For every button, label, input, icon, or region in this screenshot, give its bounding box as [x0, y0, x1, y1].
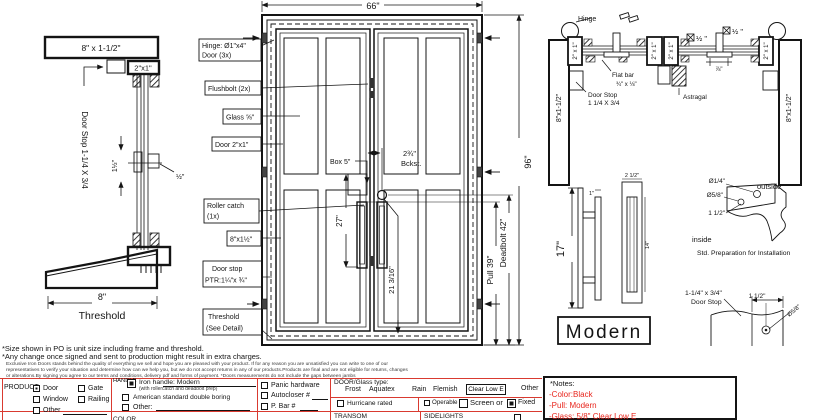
pull-height-dim: Pull 39"	[485, 255, 495, 284]
callout-doorstop-line1: Door stop	[212, 266, 242, 273]
plan-section	[549, 13, 801, 185]
plan-doorstop-line2: 1 1/4 X 3/4	[588, 100, 620, 107]
door-width-dim: 66"	[366, 1, 379, 11]
callout-bottom-rail: 8"x1½"	[230, 236, 253, 244]
handle-iron-sub-label: (with rollercatch and deadbolt prep)	[139, 387, 217, 393]
stop-profile-hole-dim: Ø5/8"	[787, 304, 802, 318]
handle-other-blank[interactable]	[156, 410, 250, 411]
handle-inner-dim: 14"	[645, 241, 651, 249]
operable-checkbox[interactable]	[424, 400, 430, 406]
color-row-label: COLOR	[113, 416, 136, 420]
latch-height-dim: 1½"	[111, 159, 119, 172]
callout-glass: Glass ⅝"	[226, 115, 255, 122]
callout-threshold-line2: (See Detail)	[206, 326, 243, 333]
screen-label: Screen or	[470, 399, 503, 407]
pull-handle-detail	[558, 179, 650, 344]
callout-roller-line2: (1x)	[207, 214, 219, 221]
form-rule-v5	[420, 411, 421, 420]
stop-profile-size: 1-1/4" x 3/4"	[685, 290, 723, 297]
head-door-stop-label: Door Stop 1-1/4 X 3/4	[80, 111, 89, 189]
handle-height-dim: 17"	[555, 241, 567, 257]
panic-hardware-checkbox[interactable]	[261, 382, 268, 389]
handle-top-dim: 1"	[589, 191, 594, 197]
pull-length-dim: 27"	[335, 215, 344, 227]
hurricane-checkbox[interactable]	[337, 400, 344, 407]
plan-flatbar-line2: ¾" x ⅛"	[616, 82, 637, 88]
plan-glass-dim-1: ½ "	[696, 34, 707, 43]
latch-offset-dim: ½"	[176, 173, 185, 181]
handle-width-dim: 2 1/2"	[625, 173, 639, 179]
handle-iron-checkbox[interactable]	[127, 379, 136, 388]
plan-jamb-left-label: 8"x1-1/2"	[556, 93, 563, 122]
handle-other-checkbox[interactable]	[122, 404, 129, 411]
plan-astragal-label: Astragal	[683, 94, 707, 101]
backset-dim-line1: 2¾"	[403, 149, 416, 158]
plan-stile-label-2: 2" x 1"	[652, 42, 658, 59]
footnote-fineprint-1: Exclusive Iron Doors stands behind the q…	[6, 362, 388, 367]
head-frame-size-label: 8" x 1-1/2"	[81, 43, 120, 53]
threshold-width-dim: 8"	[98, 292, 106, 302]
callout-hinge-line1: Hinge: Ø1"x4"	[202, 43, 246, 50]
plan-glass-dim-2: ½ "	[732, 27, 743, 36]
plan-gap-dim: ⅞"	[715, 67, 722, 73]
prep-detail	[724, 184, 786, 241]
footnote-changes: *Any change once signed and sent to prod…	[2, 353, 262, 361]
form-rule-h2	[0, 411, 542, 412]
operable-label: Operable	[432, 400, 457, 407]
form-rule-top	[0, 378, 542, 379]
plan-stile-label-3: 2" x 1"	[669, 42, 675, 59]
form-rule-v3	[330, 378, 331, 420]
product-window-checkbox[interactable]	[33, 396, 40, 403]
prep-offset-dim: 1 1/2"	[708, 210, 725, 217]
form-rule-v2	[257, 378, 258, 420]
handle-style-name: Modern	[566, 322, 642, 343]
glass-rain-option[interactable]: Rain	[412, 386, 426, 394]
autocloser-checkbox[interactable]	[261, 392, 268, 399]
panic-hardware-label: Panic hardware	[271, 382, 320, 390]
plan-stile-label-4: 2" x 1"	[764, 42, 770, 59]
deadbolt-offset-dim: 21 3/16"	[387, 266, 396, 294]
sidelights-row-label: SIDELIGHTS	[424, 413, 463, 420]
form-rule-left	[2, 378, 3, 420]
stop-profile-name: Door Stop	[691, 299, 722, 306]
product-window-label: Window	[43, 396, 68, 404]
product-gate-label: Gate	[88, 385, 103, 393]
deadbolt-height-dim: Deadbolt 42"	[498, 219, 508, 268]
glass-frost-option[interactable]: Frost	[345, 386, 361, 394]
glass-aquatex-option[interactable]: Aquatex	[369, 386, 395, 394]
backset-dim-line2: Bckst.	[401, 159, 421, 168]
product-railing-checkbox[interactable]	[78, 396, 85, 403]
form-rule-v1	[111, 378, 112, 420]
sidelights-checkbox[interactable]	[514, 414, 521, 420]
form-rule-h1	[330, 397, 542, 398]
product-door-label: Door	[43, 385, 58, 393]
glass-clearlowe-selected[interactable]: Clear Low E	[466, 384, 506, 395]
plan-stile-label-1: 2" x 1"	[573, 42, 579, 59]
plan-doorstop-line1: Door Stop	[588, 92, 618, 99]
drawing-canvas: 8" x 1-1/2" 2"x1" Door Stop 1-1/4 X 3/4 …	[0, 0, 826, 346]
product-other-blank[interactable]	[63, 414, 107, 415]
product-other-checkbox[interactable]	[33, 407, 40, 414]
lock-box-dim: Box 5"	[330, 159, 351, 166]
prep-hole-big-dim: Ø5/8"	[707, 192, 724, 199]
autocloser-blank[interactable]	[312, 399, 328, 400]
prep-hole-small-dim: Ø1/4"	[709, 178, 726, 185]
form-rule-v4	[418, 397, 419, 411]
callout-flushbolt: Flushbolt (2x)	[208, 86, 250, 93]
product-railing-label: Railing	[88, 396, 109, 404]
pbar-label: P. Bar #	[271, 403, 295, 411]
door-height-dim: 96"	[523, 155, 533, 168]
doorstop-profile-detail	[711, 296, 789, 346]
handle-american-checkbox[interactable]	[122, 394, 129, 401]
stop-profile-offset-dim: 1 1/2"	[749, 293, 766, 300]
handle-other-label: Other:	[133, 404, 152, 412]
hurricane-label: Hurricane rated	[347, 400, 392, 407]
plan-hinge-label: Hinge	[578, 16, 596, 23]
callout-door-tube: Door 2"x1"	[215, 142, 249, 149]
notes-title: *Notes:	[550, 380, 575, 388]
plan-flatbar-line1: Flat bar	[612, 72, 635, 79]
pbar-checkbox[interactable]	[261, 403, 268, 410]
shop-drawing-sheet: 8" x 1-1/2" 2"x1" Door Stop 1-1/4 X 3/4 …	[0, 0, 826, 420]
left-head-detail	[45, 37, 174, 309]
product-door-checkbox[interactable]	[33, 385, 40, 392]
notes-color: -Color:Black	[549, 391, 593, 400]
notes-pull: -Pull: Modern	[549, 402, 597, 411]
callout-roller-line1: Roller catch	[207, 203, 244, 210]
glass-flemish-option[interactable]: Flemish	[433, 386, 458, 394]
fixed-checkbox[interactable]	[507, 399, 516, 408]
handle-american-label: American standard double boring	[133, 394, 230, 401]
callout-doorstop-line2: PTR:1¼"x ¾"	[205, 278, 247, 285]
product-gate-checkbox[interactable]	[78, 385, 85, 392]
callout-threshold-line1: Threshold	[208, 314, 239, 321]
autocloser-label: Autocloser #	[271, 392, 310, 400]
door-elevation	[199, 1, 524, 345]
transom-row-label: TRANSOM	[334, 413, 367, 420]
pbar-blank[interactable]	[300, 410, 318, 411]
prep-outside-label: outside	[757, 182, 781, 191]
callout-hinge-line2: Door (3x)	[202, 53, 231, 60]
threshold-caption: Threshold	[79, 310, 126, 322]
screen-checkbox[interactable]	[459, 399, 468, 408]
product-other-label: Other	[43, 407, 61, 415]
footnote-fineprint-2: representatives to verify your situation…	[6, 368, 408, 373]
prep-inside-label: inside	[692, 235, 712, 244]
plan-jamb-right-label: 8"x1-1/2"	[786, 93, 793, 122]
notes-glass: -Glass: 5/8" Clear Low E	[549, 413, 636, 420]
fixed-label: Fixed	[518, 399, 535, 407]
glass-other-option[interactable]: Other	[521, 385, 539, 393]
prep-caption: Std. Preparation for Installation	[697, 250, 791, 257]
head-jamb-size-label: 2"x1"	[134, 64, 152, 73]
